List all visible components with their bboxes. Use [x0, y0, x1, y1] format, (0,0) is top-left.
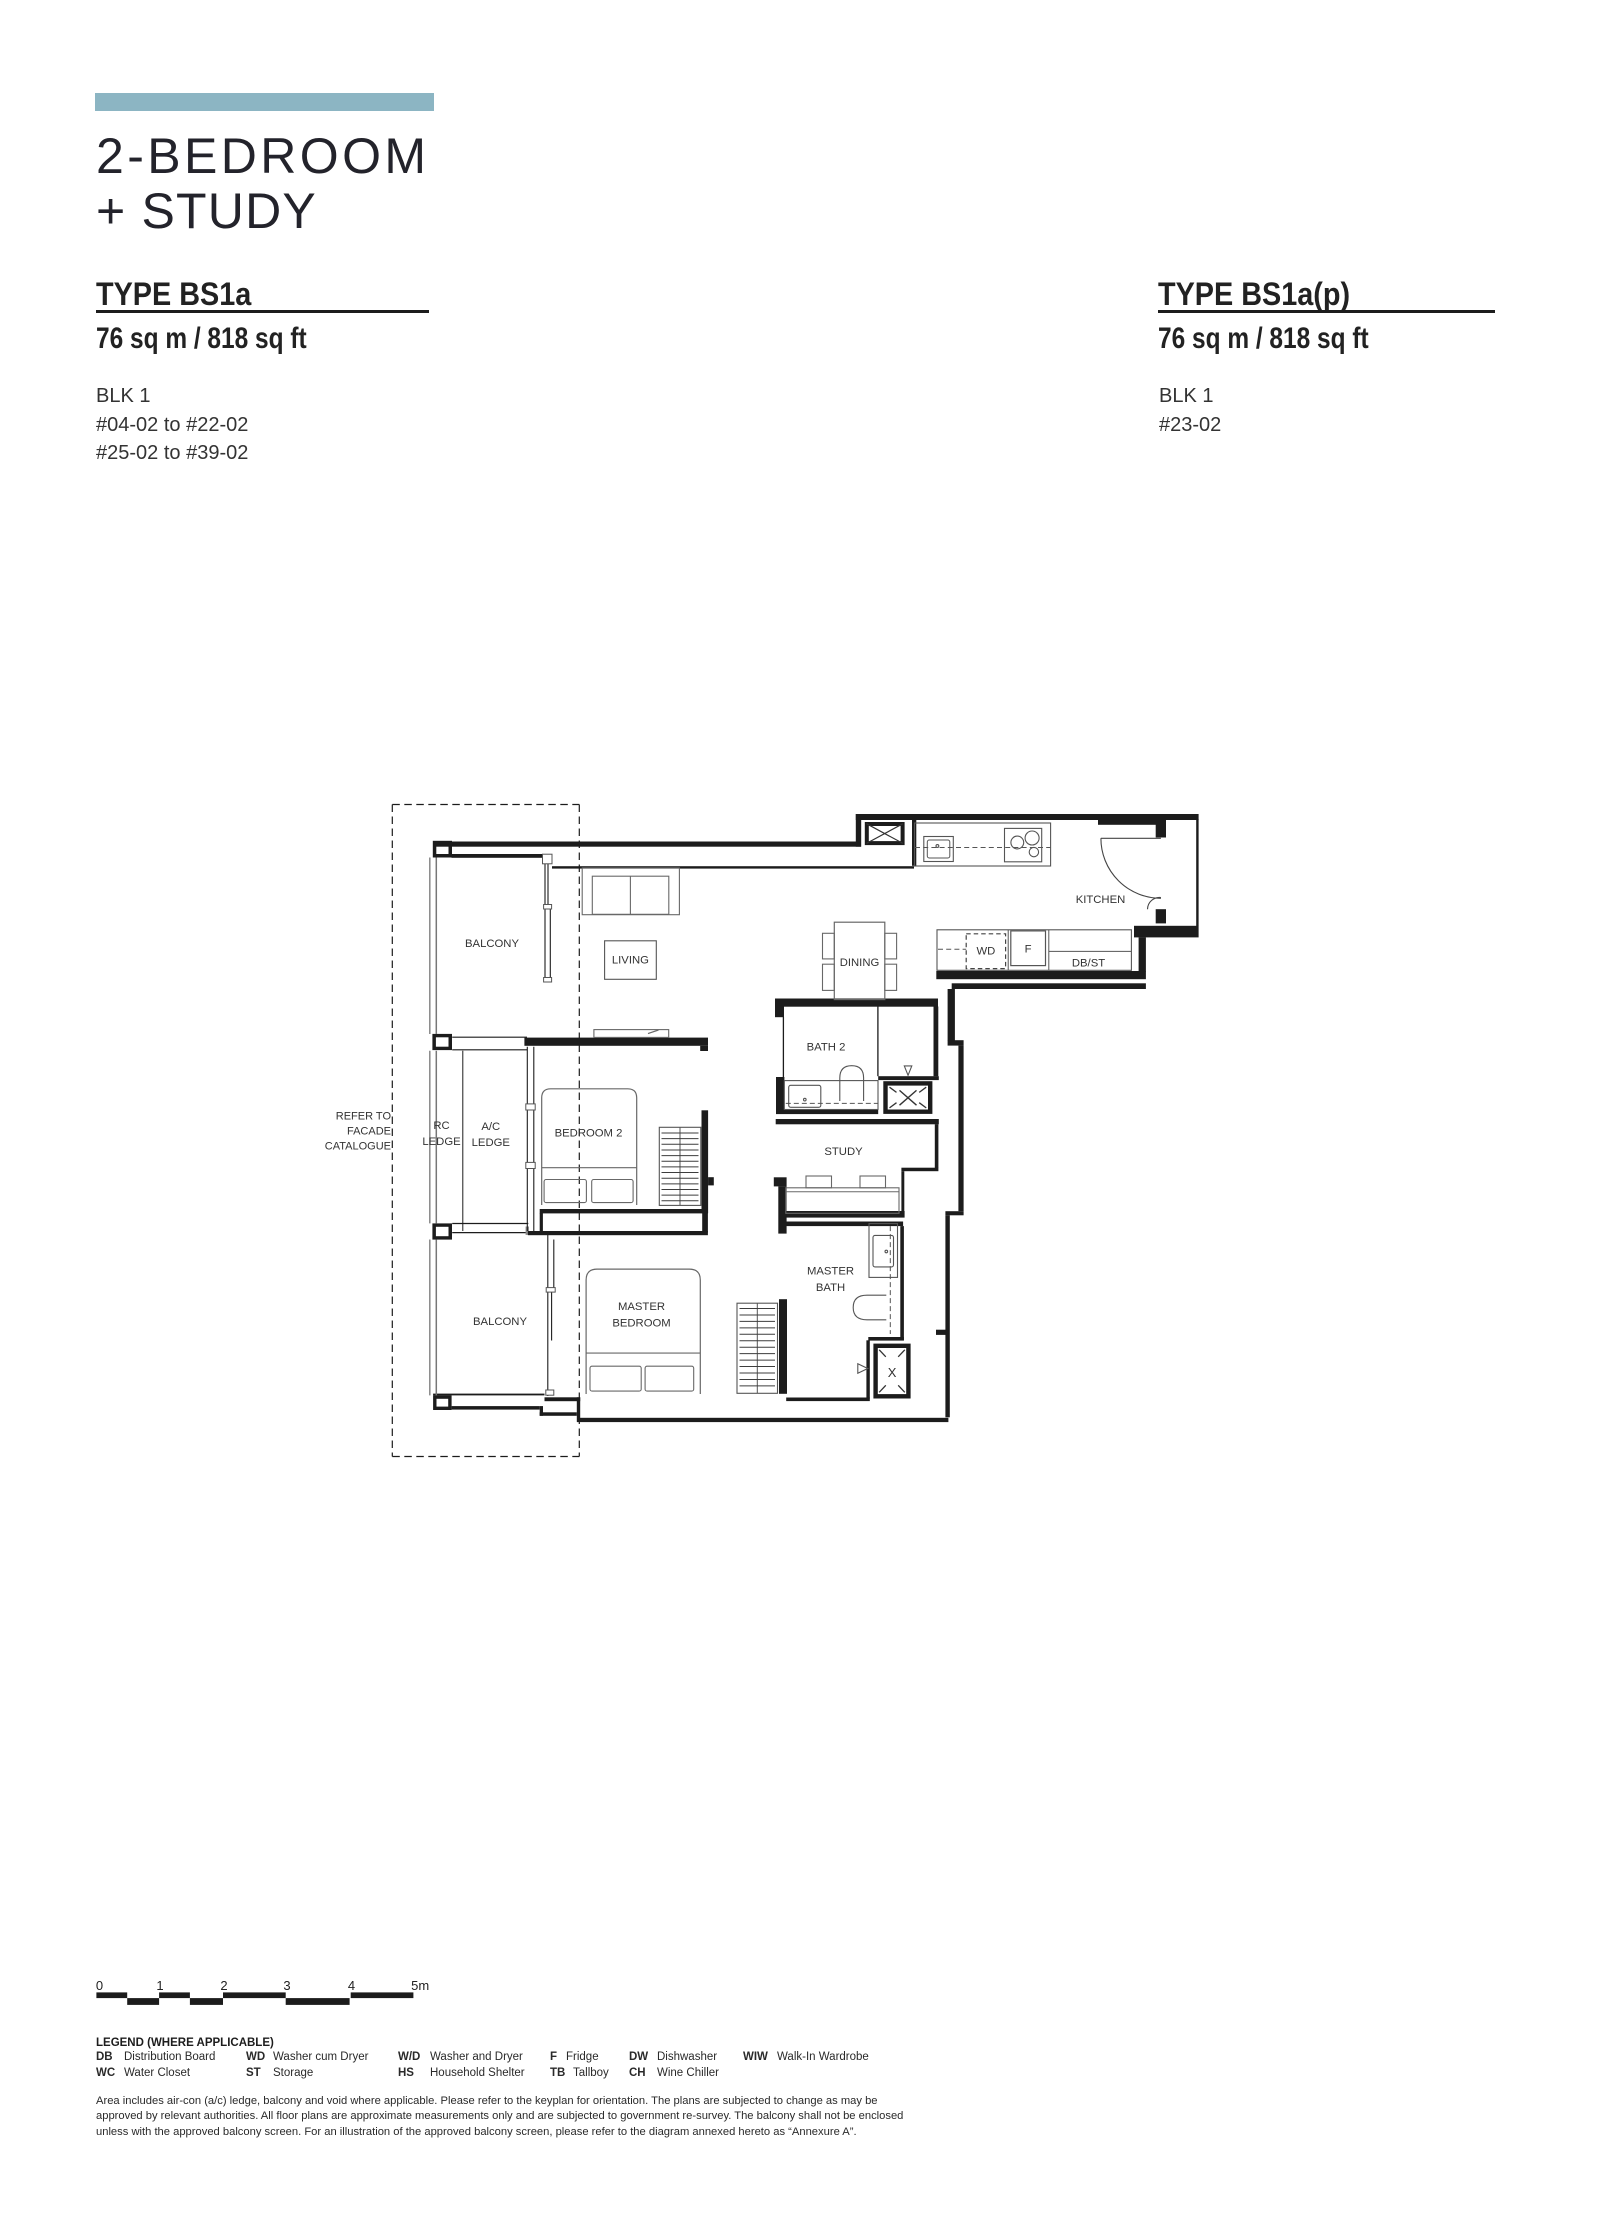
svg-text:0: 0 — [96, 1978, 103, 1993]
svg-text:3: 3 — [283, 1978, 290, 1993]
svg-text:5m: 5m — [411, 1978, 429, 1993]
svg-text:BEDROOM 2: BEDROOM 2 — [555, 1128, 623, 1140]
svg-text:F: F — [1025, 944, 1032, 956]
svg-text:FACADE: FACADE — [347, 1126, 391, 1138]
svg-text:BATH 2: BATH 2 — [807, 1042, 846, 1054]
svg-text:LIVING: LIVING — [612, 955, 649, 967]
svg-text:DINING: DINING — [840, 957, 880, 969]
svg-text:MASTER: MASTER — [807, 1266, 854, 1278]
svg-text:BEDROOM: BEDROOM — [612, 1318, 670, 1330]
svg-text:A/C: A/C — [481, 1121, 500, 1133]
svg-text:REFER TO: REFER TO — [336, 1111, 392, 1123]
svg-text:BALCONY: BALCONY — [465, 938, 519, 950]
svg-text:LEDGE: LEDGE — [472, 1137, 511, 1149]
svg-text:1: 1 — [156, 1978, 163, 1993]
svg-text:KITCHEN: KITCHEN — [1076, 894, 1126, 906]
svg-text:STUDY: STUDY — [824, 1146, 863, 1158]
svg-text:DB/ST: DB/ST — [1072, 958, 1105, 970]
svg-text:MASTER: MASTER — [618, 1301, 665, 1313]
svg-text:CATALOGUE: CATALOGUE — [325, 1141, 391, 1153]
svg-text:LEDGE: LEDGE — [422, 1136, 461, 1148]
svg-text:BALCONY: BALCONY — [473, 1316, 527, 1328]
svg-text:2: 2 — [220, 1978, 227, 1993]
svg-text:RC: RC — [433, 1120, 449, 1132]
svg-text:X: X — [888, 1365, 897, 1380]
svg-text:WD: WD — [976, 946, 995, 958]
svg-text:BATH: BATH — [816, 1282, 845, 1294]
svg-text:4: 4 — [348, 1978, 355, 1993]
